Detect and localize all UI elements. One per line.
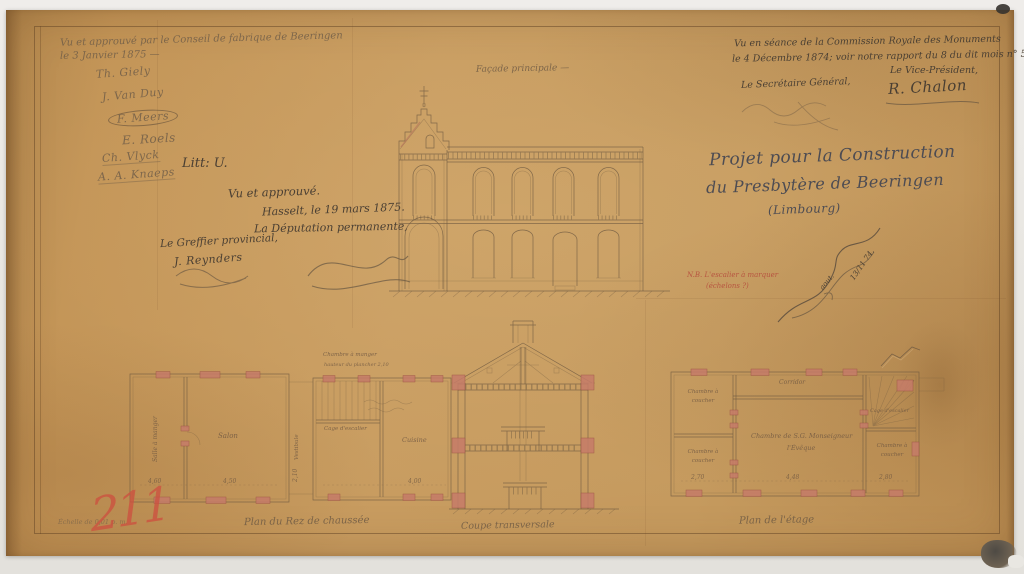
paper-crease (645, 300, 646, 546)
vice-president-underline (884, 96, 982, 108)
stair-label: Cage d'escalier (870, 408, 909, 414)
corridor-label: Corridor (779, 379, 805, 386)
paper-crease (157, 20, 158, 310)
paper-damage-top-right (996, 4, 1010, 14)
clerk-signature-flourish (172, 264, 267, 290)
room-label-bishop-1: Chambre de S.G. Monseigneur (751, 432, 852, 440)
ground-floor-plan-drawing: Salle à manger Salon Vestibule Cage d'es… (118, 352, 458, 520)
room-label-salon: Salon (218, 432, 238, 440)
facade-elevation-svg (387, 78, 672, 303)
room-label-vestibule: Vestibule (294, 434, 300, 460)
first-floor-plan-drawing: Corridor Chambre à coucher Chambre à cou… (651, 350, 951, 518)
stair-label: Cage d'escalier (324, 426, 367, 432)
dimension: 4,48 (786, 474, 799, 481)
dimension: 4,50 (223, 478, 236, 485)
paper-fold-shadow-right (1006, 10, 1014, 556)
red-nb-note-line1: N.B. L'escalier à marquer (687, 271, 778, 279)
cross-section-svg (449, 313, 619, 523)
fabrique-approval-line2: le 3 Janvier 1875 — (60, 49, 160, 62)
ink-border-double-line (40, 26, 41, 534)
red-nb-note-line2: (échelons ?) (706, 282, 749, 290)
project-title-line3: (Limbourg) (768, 201, 841, 218)
room-label-bedroom-bl: Chambre à coucher (681, 448, 725, 466)
dimension: 4,00 (408, 478, 421, 485)
section-caption: Coupe transversale (461, 519, 555, 532)
ground-plan-caption: Plan du Rez de chaussée (244, 515, 370, 528)
paper-fold-shadow-left (6, 10, 22, 556)
fabrique-signature: E. Roels (122, 131, 176, 148)
dimension: 2,80 (879, 474, 892, 481)
litt-reference: Litt: U. (182, 156, 228, 171)
plan-note-2: hauteur du plancher 2,10 (324, 362, 389, 368)
paper-tear-mark (878, 342, 923, 370)
room-label-annex: Cuisine (402, 436, 427, 444)
room-label-bishop-2: l'Évêque (787, 444, 815, 452)
facade-caption: Façade principale — (476, 63, 569, 75)
room-label-bedroom-r: Chambre à coucher (872, 442, 912, 460)
drawing-sheet: Vu et approuvé par le Conseil de fabriqu… (6, 10, 1014, 556)
plan-note-1: Chambre à manger (323, 352, 377, 358)
scanned-document: Vu et approuvé par le Conseil de fabriqu… (0, 0, 1024, 574)
dimension: 2,10 (292, 469, 299, 482)
room-label-bedroom-tl: Chambre à coucher (681, 388, 725, 406)
dimension: 2,70 (691, 474, 704, 481)
facade-elevation-drawing (387, 78, 672, 303)
cross-section-drawing (449, 313, 619, 523)
vice-president-title: Le Vice-Président, (890, 65, 978, 76)
room-label-dining: Salle à manger (152, 416, 159, 462)
paper-torn-corner (1008, 555, 1024, 568)
secretary-signature-flourish (738, 94, 843, 134)
floor-plan-caption: Plan de l'étage (739, 514, 814, 526)
